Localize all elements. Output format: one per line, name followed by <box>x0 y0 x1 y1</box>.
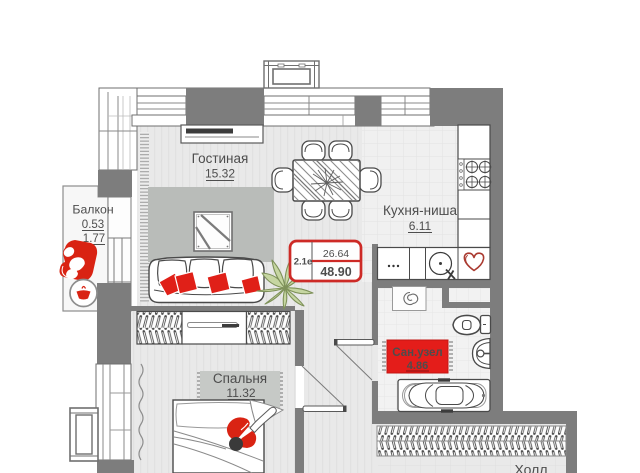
svg-text:Сан.узел: Сан.узел <box>392 347 443 359</box>
svg-text:26.64: 26.64 <box>323 248 349 260</box>
svg-text:15.32: 15.32 <box>205 167 235 181</box>
svg-text:6.11: 6.11 <box>409 219 432 233</box>
svg-text:11.32: 11.32 <box>226 386 255 400</box>
svg-text:2.1е: 2.1е <box>294 257 313 268</box>
svg-text:4.86: 4.86 <box>407 360 428 372</box>
svg-text:Спальня: Спальня <box>213 371 267 386</box>
svg-text:Кухня-ниша: Кухня-ниша <box>383 203 457 218</box>
svg-text:48.90: 48.90 <box>320 265 351 279</box>
svg-text:Холл: Холл <box>515 462 548 473</box>
svg-text:0.53: 0.53 <box>82 219 104 231</box>
svg-text:Гостиная: Гостиная <box>192 151 249 166</box>
svg-text:Балкон: Балкон <box>72 203 113 217</box>
